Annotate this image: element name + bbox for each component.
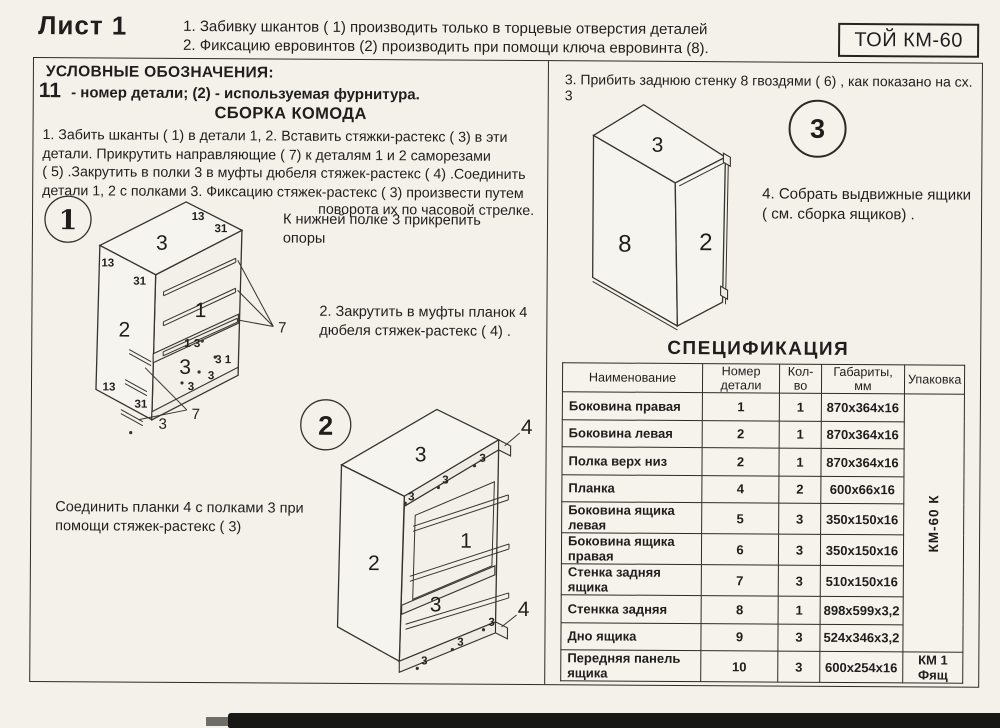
dowel-mark: 3 1 (215, 354, 232, 366)
package-cell: КМ-60 К (903, 394, 965, 652)
part-label: 3 (156, 232, 168, 255)
plank-number: 4 (518, 598, 530, 621)
column-divider (544, 61, 549, 684)
diagram-1-badge: 1 (59, 205, 78, 236)
col-header: Номер детали (702, 364, 779, 393)
table-row: Боковина правая 1 1 870х364х16 КМ-60 К (562, 392, 964, 422)
part-label: 2 (699, 229, 713, 256)
assembly-step4: 4. Собрать выдвижные ящики ( см. сборка … (762, 184, 1000, 225)
dowel-mark: 13 (192, 211, 205, 223)
top-notes: 1. Забивку шкантов ( 1) производить толь… (183, 17, 709, 58)
spec-header-row: Наименование Номер детали Кол-во Габарит… (562, 363, 964, 394)
scanned-sheet: Лист 1 1. Забивку шкантов ( 1) производи… (0, 0, 1000, 716)
dowel-mark: 3 (188, 381, 194, 393)
assembly-title: СБОРКА КОМОДА (34, 103, 548, 125)
dowel-mark: 3 (421, 655, 427, 667)
scan-edge-artifact (228, 713, 1000, 728)
col-header: Упаковка (904, 365, 965, 394)
dowel-mark: 31 (133, 276, 146, 288)
package-cell-last: КМ 1 Фящ (903, 652, 964, 683)
legend-line: 11 - номер детали; (2) - используемая фу… (39, 79, 420, 105)
table-row: Передняя панель ящика 10 3 600х254х16 КМ… (561, 650, 964, 683)
rail-number: 7 (278, 320, 286, 337)
content-frame: УСЛОВНЫЕ ОБОЗНАЧЕНИЯ: 11 - номер детали;… (29, 57, 983, 688)
part-label: 3 (179, 356, 191, 379)
diagram-3-badge-number: 3 (810, 113, 825, 144)
col-header: Кол-во (779, 364, 821, 393)
legend-part-symbol: 11 (39, 79, 61, 102)
rail-leaders-right (237, 260, 273, 326)
dowel-mark: 13 (101, 257, 114, 269)
note-support: К нижней полке 3 прикрепить опоры (283, 211, 523, 250)
model-code: ТОЙ КМ-60 (854, 29, 963, 53)
part-label: 2 (368, 552, 380, 575)
dowel-mark: 3 (488, 617, 494, 629)
plank-top-leader (505, 433, 520, 446)
rail-number: 7 (192, 406, 200, 423)
diagram-3-badge: 3 (788, 100, 846, 158)
dowel-mark: 13 (103, 381, 116, 393)
legend-text: - номер детали; (2) - используемая фурни… (71, 84, 420, 103)
part-label: 2 (118, 319, 130, 342)
dowel-mark: 3 (479, 453, 485, 465)
col-header: Габариты, мм (821, 364, 904, 394)
diagram-3-back-panel: 3 8 2 (574, 99, 796, 350)
part-label: 3 (430, 593, 442, 616)
part-label: 3 (159, 416, 167, 433)
dowel-mark: 31 (215, 223, 228, 235)
sheet-title: Лист 1 (38, 10, 127, 42)
plank-bottom-leader (502, 615, 517, 627)
diagram-2-badge: 2 (318, 411, 333, 441)
plank-bottom-end (495, 622, 507, 639)
part-label: 1 (195, 299, 207, 322)
col-header: Наименование (562, 363, 702, 393)
spec-title: СПЕЦИФИКАЦИЯ (562, 337, 954, 361)
model-code-box: ТОЙ КМ-60 (838, 23, 979, 58)
dowel-mark: 1 3 (184, 338, 200, 350)
part-label: 3 (652, 134, 664, 157)
part-label: 3 (415, 443, 427, 466)
assembly-step2: 2. Закрутить в муфты планок 4 дюбеля стя… (319, 303, 554, 342)
dowel-mark: 3 (408, 491, 414, 503)
plank-number: 4 (521, 416, 533, 439)
diagram-2-plank-assembly: 2 3 2 1 3 4 4 3 3 3 3 (297, 393, 544, 684)
dowel-mark: 31 (134, 399, 147, 411)
diagram-1-carcass-assembly: 1 3 2 1 3 3 13 31 (39, 191, 301, 443)
dowel-mark: 3 (442, 475, 448, 487)
dowel-mark: 3 (457, 637, 463, 649)
dowel-mark: 3 (208, 370, 214, 382)
spec-table: Наименование Номер детали Кол-во Габарит… (560, 362, 965, 683)
part-label: 8 (618, 231, 632, 258)
part-label: 1 (460, 530, 472, 553)
